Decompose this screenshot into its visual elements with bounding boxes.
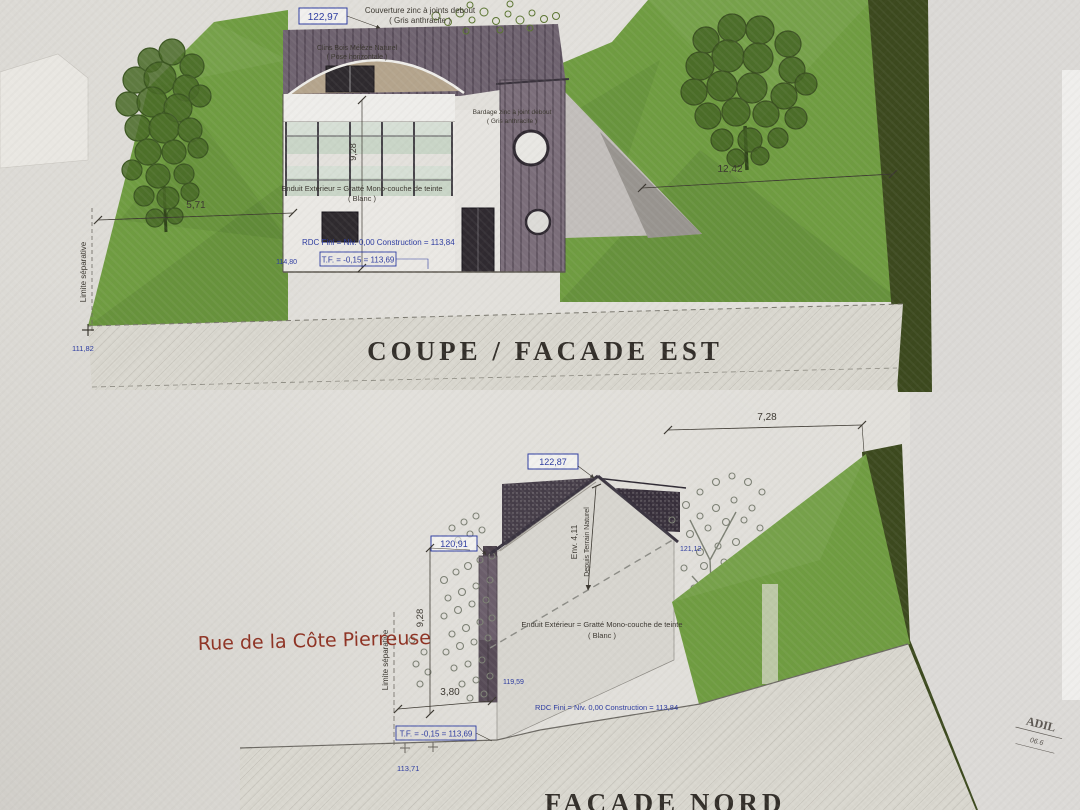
- dim-top-label: 7,28: [757, 412, 777, 423]
- env-note-line1: Env. 4,11: [569, 524, 579, 559]
- pale-green-strip: [762, 584, 778, 684]
- level-base-label: 119,59: [503, 679, 524, 686]
- dim-right-top: 12,42: [717, 164, 742, 175]
- bardage-note-line2: ( Gris anthracite ): [487, 118, 537, 125]
- tf-line-top: T.F. = -0,15 = 113,69: [322, 256, 395, 265]
- level-ground-top: 111,82: [72, 344, 94, 353]
- couverture-note-line1: Couverture zinc à joints debout: [365, 6, 476, 15]
- top-drawing: 122,97 Couverture zinc à joints debout (…: [0, 0, 1080, 392]
- dim-height-bottom: 9,28: [415, 609, 426, 628]
- top-title: COUPE / FACADE EST: [367, 336, 723, 366]
- level-ridge-label: 122,87: [539, 457, 567, 467]
- dim-width-bottom: 3,80: [440, 687, 460, 698]
- bottom-title: FACADE NORD: [545, 788, 786, 810]
- level-ground-bottom: 113,71: [397, 764, 419, 773]
- bardage-note-line1: Bardage zinc à joint debout: [473, 109, 552, 116]
- neighbour-building: [0, 54, 88, 168]
- zinc-volume: [496, 79, 569, 272]
- level-right-label: 121,12: [680, 546, 702, 553]
- enduit-note-top-line2: ( Blanc ): [348, 194, 376, 203]
- dim-left-top: 5,71: [186, 200, 206, 211]
- level-left-top: 114,80: [276, 259, 297, 266]
- env-note-line2: Depuis Terrain Naturel: [584, 507, 591, 577]
- porthole-window-lower: [526, 210, 550, 234]
- dim-top-bottom-drawing: 7,28: [664, 412, 866, 452]
- rdc-line-top: RDC Fini = Niv. 0,00 Construction = 113,…: [302, 238, 455, 247]
- clins-note-line1: Clins Bois Mélèze Naturel: [317, 45, 398, 52]
- architectural-plan-photo: 122,97 Couverture zinc à joints debout (…: [0, 0, 1080, 810]
- paper-white-strip: [1062, 70, 1080, 700]
- plan-canvas: 122,97 Couverture zinc à joints debout (…: [0, 0, 1080, 810]
- enduit-note-bottom-line1: Enduit Extérieur = Gratté Mono-couche de…: [521, 620, 682, 629]
- tf-line-bottom: T.F. = -0,15 = 113,69: [400, 730, 473, 739]
- level-peak-label: 122,97: [308, 12, 339, 23]
- limite-label-top: Limite séparative: [79, 241, 88, 302]
- rdc-line-bottom: RDC Fini = Niv. 0,00 Construction = 113,…: [535, 703, 678, 712]
- street-name: Rue de la Côte Pierreuse: [198, 627, 432, 655]
- dim-height-top: 9,28: [348, 143, 358, 161]
- white-wing: [455, 110, 500, 272]
- porthole-window-upper: [514, 131, 548, 165]
- house-east-facade: [283, 24, 569, 272]
- clins-note-line2: ( Pose horizontale ): [327, 54, 388, 61]
- enduit-note-bottom-line2: ( Blanc ): [588, 631, 616, 640]
- couverture-note-line2: ( Gris anthracite ): [389, 16, 451, 25]
- level-left-label: 120,91: [440, 539, 468, 549]
- enduit-note-top-line1: Enduit Extérieur = Gratté Mono-couche de…: [281, 184, 442, 193]
- paper-edge-right: [928, 0, 1080, 392]
